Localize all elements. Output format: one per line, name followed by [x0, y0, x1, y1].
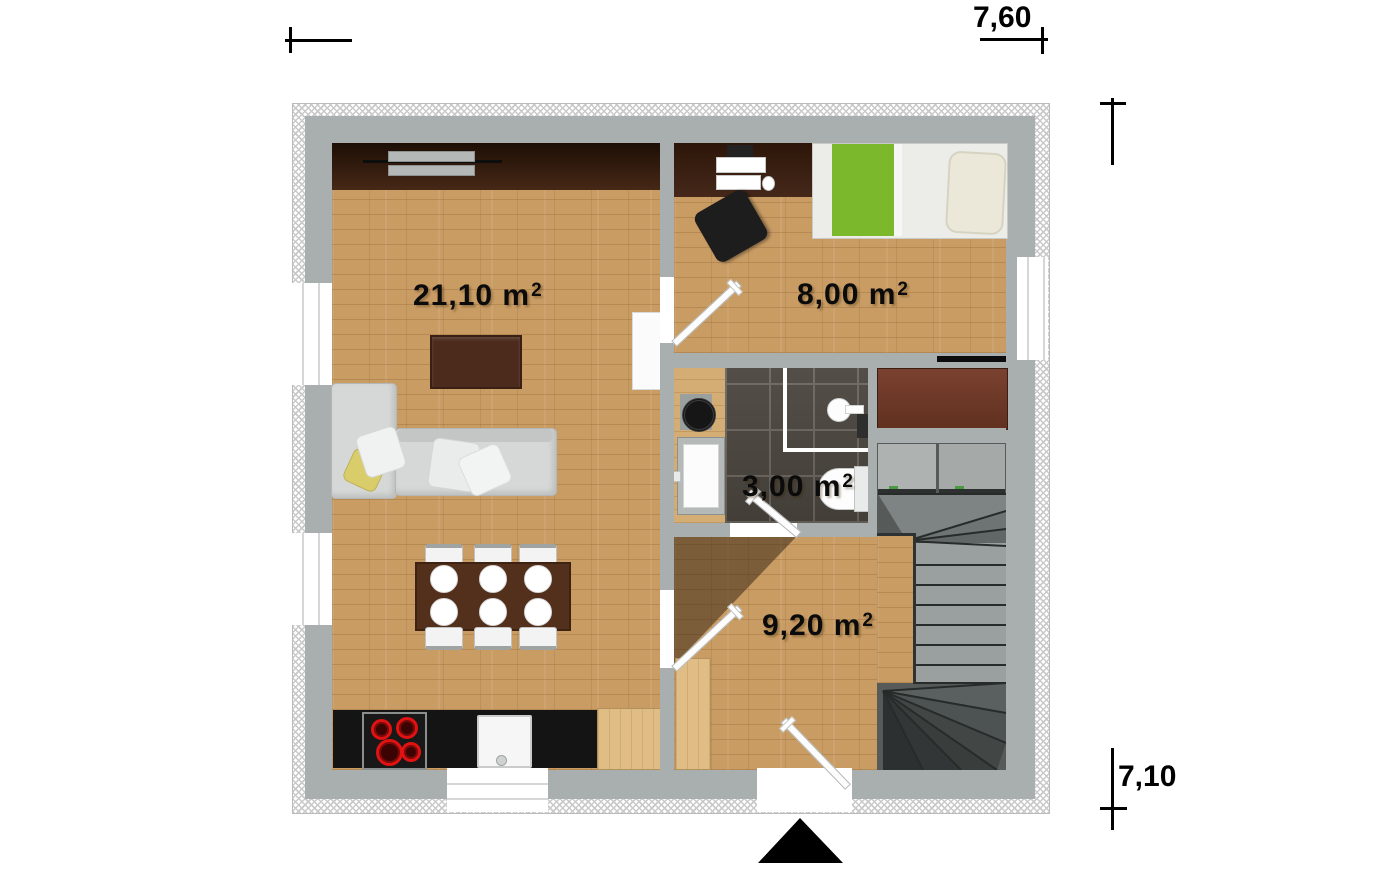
bedroom-label: 8,00 m2	[797, 277, 909, 312]
stove-burner	[371, 719, 392, 740]
entrance-arrow-icon	[758, 818, 843, 863]
bedroom-area-value: 8,00	[797, 278, 859, 311]
inner-wall-central	[660, 143, 674, 770]
hallway-cabinet	[675, 658, 711, 770]
shower-arm	[845, 405, 864, 414]
dimension-tick	[1100, 807, 1127, 810]
floor-plan: 21,10 m2 8,00 m2 3,00 m2 9,20 m2 7,60 7,…	[0, 0, 1400, 875]
radiator	[632, 312, 662, 390]
bed-pillow	[945, 151, 1007, 236]
bathroom-area-value: 3,00	[742, 470, 804, 503]
living-room-door-opening	[660, 590, 674, 668]
area-unit-sup: 2	[862, 610, 874, 631]
stair-marker	[889, 486, 898, 489]
stove-burner	[401, 742, 421, 762]
bed-sheet-fold	[894, 144, 902, 236]
inner-wall-stairs	[868, 368, 877, 537]
plate	[479, 598, 507, 626]
hallway-floor-notch	[877, 533, 916, 683]
stove-burner	[376, 739, 403, 766]
desk-mouse	[762, 176, 775, 191]
kitchen-faucet	[496, 755, 507, 766]
tv-sideboard	[332, 143, 660, 190]
wardrobe	[877, 368, 1008, 430]
dimension-tick	[289, 27, 292, 53]
dimension-tick	[1041, 27, 1044, 54]
desk-keyboard	[716, 175, 761, 190]
window-living-room-2	[292, 533, 332, 625]
dimension-line-right-top	[1111, 98, 1114, 165]
area-unit: m	[834, 609, 862, 642]
desk-monitor	[716, 157, 766, 173]
inner-wall-wardrobe	[877, 428, 1006, 443]
dimension-tick	[1100, 102, 1126, 105]
area-unit: m	[502, 279, 530, 312]
area-unit: m	[814, 470, 842, 503]
stair-landing	[878, 444, 936, 493]
round-sink	[682, 398, 716, 432]
stair-landing	[939, 444, 1005, 493]
dimension-line-right-bottom	[1111, 748, 1114, 830]
bed-blanket	[832, 144, 894, 236]
area-unit: m	[869, 278, 897, 311]
stove-burner	[396, 717, 418, 739]
bathroom-label: 3,00 m2	[742, 469, 854, 504]
dining-chair	[425, 627, 463, 650]
dimension-line-top-left	[285, 39, 352, 42]
plate	[524, 598, 552, 626]
plate	[524, 565, 552, 593]
hallway-area-value: 9,20	[762, 609, 824, 642]
window-living-room-1	[292, 283, 332, 385]
shower-fixture	[857, 414, 868, 438]
window-bedroom	[1017, 257, 1048, 360]
tv	[388, 151, 475, 162]
area-unit-sup: 2	[897, 279, 909, 300]
desk-monitor-stand	[727, 145, 753, 157]
bedroom-door-opening	[660, 277, 674, 343]
plate	[479, 565, 507, 593]
living-room-label: 21,10 m2	[413, 278, 543, 313]
area-unit-sup: 2	[531, 280, 543, 301]
dimension-line-top-right	[980, 38, 1048, 41]
area-unit-sup: 2	[842, 471, 854, 492]
shower-screen	[783, 368, 787, 452]
dimension-label-height: 7,10	[1118, 760, 1176, 794]
stair-marker	[955, 486, 964, 489]
hallway-label: 9,20 m2	[762, 608, 874, 643]
living-room-area-value: 21,10	[413, 279, 493, 312]
dimension-label-width: 7,60	[973, 1, 1031, 35]
tv-soundbar	[388, 165, 475, 176]
kitchen-end-cabinet	[597, 708, 662, 770]
dining-chair	[519, 627, 557, 650]
washbasin-bowl	[683, 444, 719, 508]
dining-chair	[474, 627, 512, 650]
window-kitchen	[447, 768, 548, 812]
plate	[430, 565, 458, 593]
shower-screen	[783, 448, 868, 452]
wardrobe-top-edge	[937, 356, 1006, 362]
sofa-backrest	[397, 429, 553, 442]
coffee-table	[430, 335, 522, 389]
plate	[430, 598, 458, 626]
